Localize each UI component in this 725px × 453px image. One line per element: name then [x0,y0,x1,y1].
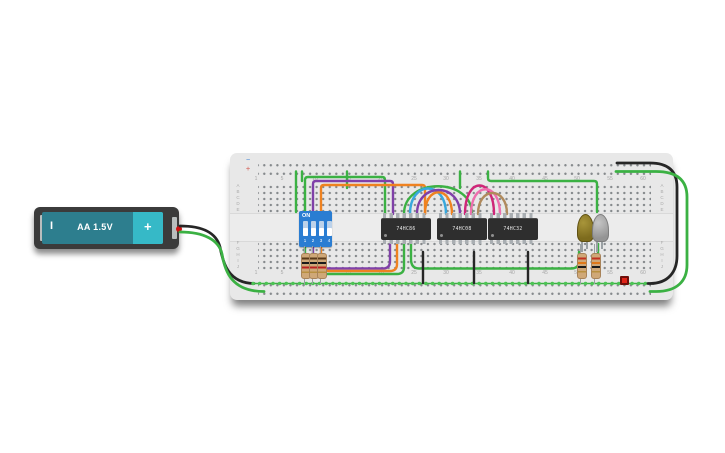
resistor4-lead-top [580,244,582,253]
ic3-label: 74HC32 [503,227,522,232]
red-rail-component[interactable] [620,276,629,285]
ic-74hc32[interactable]: 74HC32 [488,218,538,240]
ic1-pin1-dot [384,234,387,237]
ic-74hc86[interactable]: 74HC86 [381,218,431,240]
wire-arc-orange[interactable] [425,192,452,214]
dip-switch-num-1: 1 [303,238,308,243]
dip-switch-lever-4[interactable] [327,221,332,236]
dip-switch-on-label: ON [302,213,310,219]
resistor5-lead-top [594,244,596,253]
resistor-5[interactable] [591,253,601,279]
circuit-canvas[interactable]: − + 1 5 10 15 20 25 30 35 40 45 50 55 60… [0,0,725,453]
ic3-pin1-dot [491,234,494,237]
gray-led[interactable] [592,214,609,242]
wire-battery-negative[interactable] [180,226,254,284]
ic2-pin1-dot [440,234,443,237]
dip-switch-num-4: 4 [327,238,332,243]
wire-wrap-black[interactable] [617,163,677,284]
dip-switch-lever-2[interactable] [311,221,316,236]
wires-layer [0,0,725,453]
dip-switch[interactable]: ON 1 2 3 4 [299,211,332,247]
resistor-4[interactable] [577,253,587,279]
dip-switch-num-3: 3 [319,238,324,243]
dip-switch-lever-1[interactable] [303,221,308,236]
dip-switch-lever-3[interactable] [319,221,324,236]
ic1-label: 74HC86 [396,227,415,232]
ic-74hc08[interactable]: 74HC08 [437,218,487,240]
resistor-3[interactable] [317,253,327,279]
wire-switch1-green[interactable] [305,177,385,214]
dip-switch-num-2: 2 [311,238,316,243]
wire-led-feed-green[interactable] [488,172,597,213]
wire-bottom-long-green[interactable] [411,244,579,269]
ic2-label: 74HC08 [452,227,471,232]
